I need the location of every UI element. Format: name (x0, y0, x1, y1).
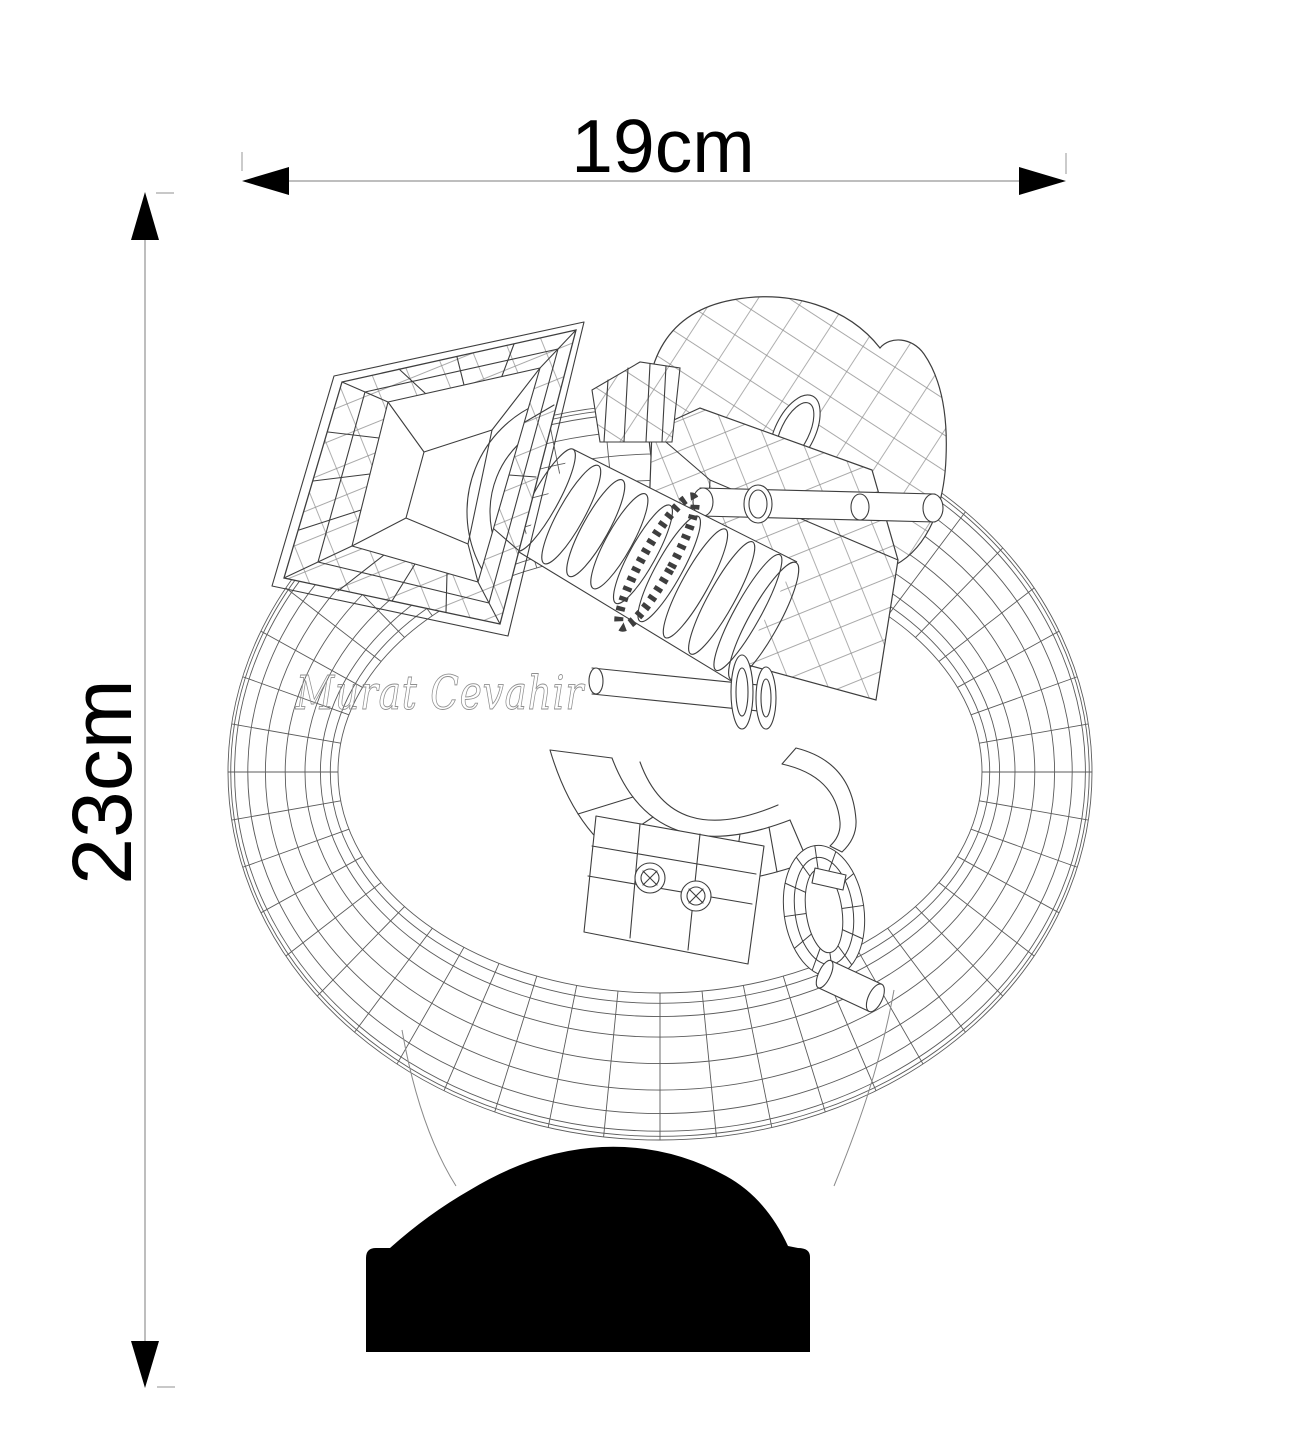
axle-with-discs (589, 655, 776, 729)
right-arrowhead-icon (1019, 167, 1066, 195)
left-arrowhead-icon (242, 167, 289, 195)
up-arrowhead-icon (131, 192, 159, 240)
down-arrowhead-icon (131, 1341, 159, 1388)
width-dimension: 19cm (242, 104, 1066, 195)
technical-drawing-canvas: Murat Cevahir 19cm 23cm (0, 0, 1300, 1430)
technical-drawing-page: Murat Cevahir 19cm 23cm (0, 0, 1300, 1430)
lamp-base-silhouette (366, 1147, 810, 1352)
width-dimension-label: 19cm (571, 104, 754, 188)
height-dimension-label: 23cm (55, 679, 149, 884)
watermark-text: Murat Cevahir (295, 666, 585, 721)
lens-sleeve (592, 362, 680, 442)
height-dimension: 23cm (55, 192, 175, 1388)
